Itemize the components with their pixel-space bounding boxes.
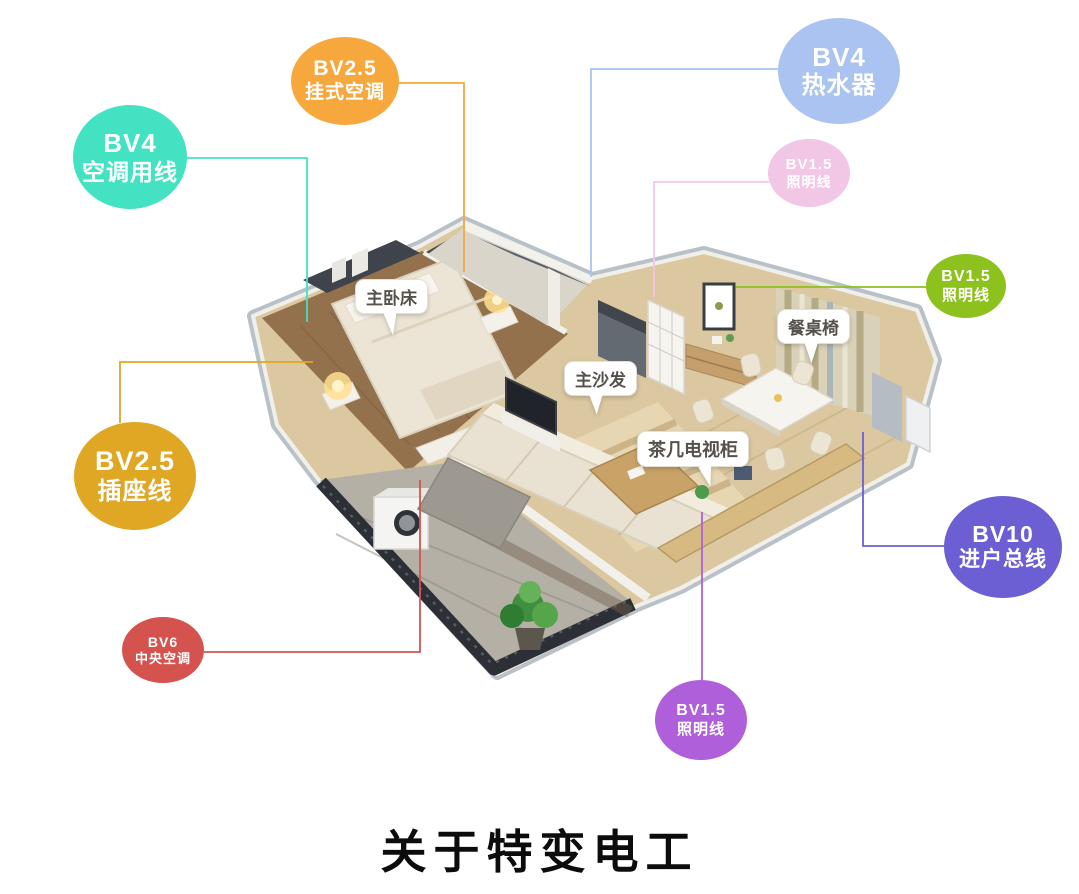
badge-lighting-bottom: BV1.5 照明线 [655,680,747,760]
badge-code: BV10 [972,521,1034,548]
badge-code: BV1.5 [941,268,990,287]
callout-label: 主卧床 [356,280,427,313]
badge-central-ac: BV6 中央空调 [122,617,204,683]
badge-code: BV2.5 [313,57,376,82]
callout-master-bed: 主卧床 [355,279,428,314]
callout-tail [805,341,822,364]
badge-label: 照明线 [677,721,725,739]
callout-label: 茶几电视柜 [638,432,748,466]
badge-code: BV4 [812,42,866,73]
badge-label: 照明线 [942,287,990,305]
badge-label: 照明线 [787,174,832,191]
page-title: 关于特变电工 [0,816,1079,882]
books [734,466,752,480]
badge-lighting-top: BV1.5 照明线 [768,139,850,207]
badge-code: BV1.5 [676,702,725,721]
badge-socket-wire: BV2.5 插座线 [74,422,196,530]
badge-water-heater: BV4 热水器 [778,18,900,124]
badge-label: 空调用线 [82,159,178,186]
badge-label: 插座线 [98,478,173,506]
badge-label: 热水器 [802,72,877,100]
badge-code: BV1.5 [786,156,833,174]
callout-dining-table-chairs: 餐桌椅 [777,309,850,344]
callout-tea-table-tv-cabinet: 茶几电视柜 [637,431,749,467]
leader-water-heater [591,69,779,277]
badge-code: BV4 [103,128,157,159]
callout-label: 餐桌椅 [778,310,849,343]
badge-label: 挂式空调 [305,82,385,104]
badge-code: BV6 [148,634,178,651]
callout-label: 主沙发 [565,362,636,395]
badge-ac-wire: BV4 空调用线 [73,105,187,209]
badge-label: 进户总线 [959,548,1047,573]
badge-label: 中央空调 [135,651,191,666]
badge-main-entry-line: BV10 进户总线 [944,496,1062,598]
infographic-apartment-wiring: BV4 空调用线 BV2.5 挂式空调 BV4 热水器 BV1.5 照明线 BV… [0,0,1079,894]
badge-code: BV2.5 [95,446,175,478]
badge-lighting-right: BV1.5 照明线 [926,254,1006,318]
badge-wall-ac: BV2.5 挂式空调 [291,37,399,125]
callout-main-sofa: 主沙发 [564,361,637,396]
